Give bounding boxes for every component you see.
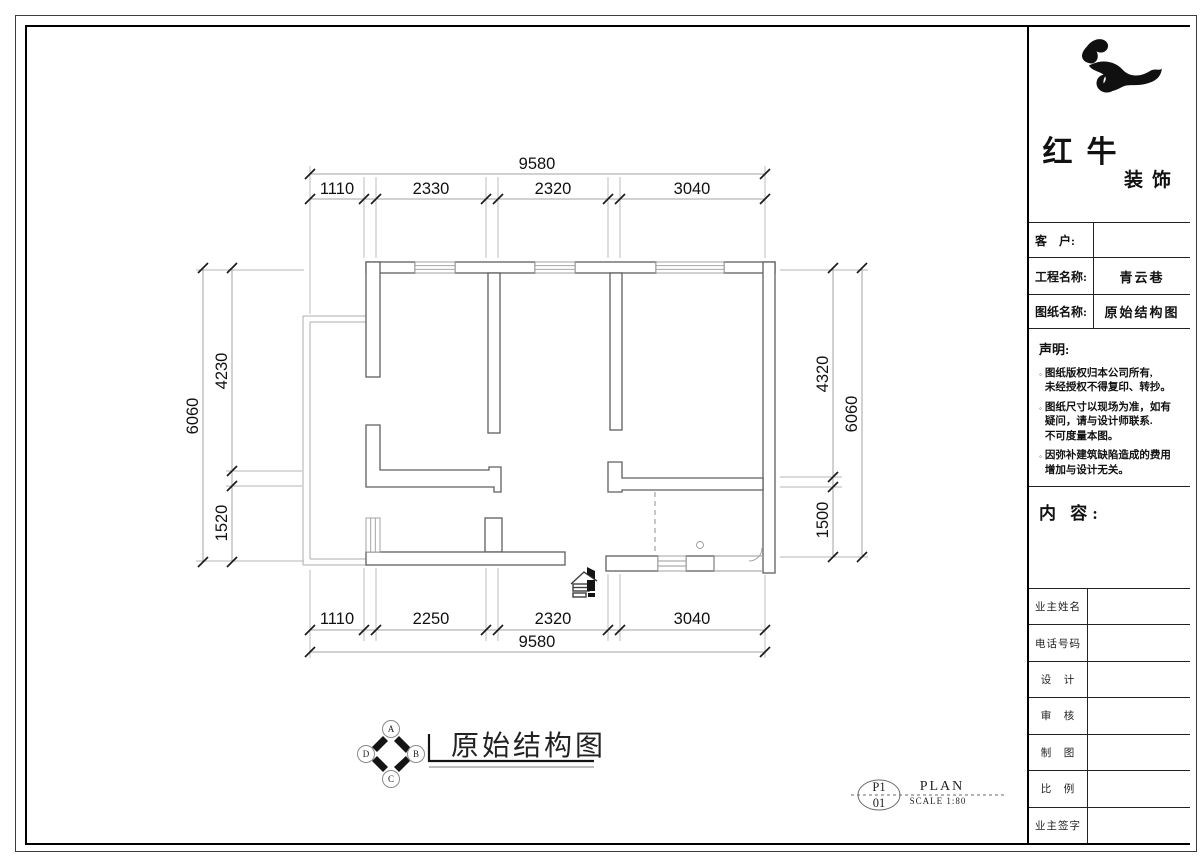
elevation-label-c: C <box>388 774 394 784</box>
dimension-right: 4320 1500 6060 <box>780 263 868 562</box>
signature-value-cell <box>1088 589 1190 624</box>
elevation-label-b: B <box>413 749 419 759</box>
field-value: 青云巷 <box>1094 258 1190 294</box>
dim-top-seg-2: 2330 <box>413 180 450 198</box>
bullet-icon: ◦ <box>1039 401 1042 444</box>
elevation-label-a: A <box>388 724 395 734</box>
dashed-partition <box>655 492 704 556</box>
field-row-sheet-name: 图纸名称: 原始结构图 <box>1029 294 1190 328</box>
plan-title-text: 原始结构图 <box>451 730 606 762</box>
brand-subname: 装饰 <box>1124 165 1180 192</box>
field-value <box>1094 223 1190 257</box>
dim-top-seg-3: 2320 <box>535 180 572 198</box>
signature-row-design: 设 计 <box>1029 661 1190 697</box>
statement-item: ◦ 图纸尺寸以现场为准，如有 疑问，请与设计师联系. 不可度量本图。 <box>1039 401 1184 444</box>
signature-value-cell <box>1088 698 1190 733</box>
dim-bottom-seg-4: 3040 <box>674 610 711 628</box>
walls <box>366 262 775 573</box>
ref-scale: SCALE 1:80 <box>910 796 967 806</box>
dim-top-seg-4: 3040 <box>674 180 711 198</box>
signature-row-owner-name: 业主姓名 <box>1029 588 1190 624</box>
field-label: 工程名称: <box>1029 258 1094 294</box>
statement-item: ◦ 图纸版权归本公司所有, 未经授权不得复印、转抄。 <box>1039 367 1184 396</box>
dim-left-seg-1: 4230 <box>213 353 231 390</box>
floor-drain-icon <box>697 542 704 549</box>
bull-logo-icon <box>1051 33 1169 129</box>
dim-top-seg-1: 1110 <box>320 180 354 198</box>
signature-row-owner-sign: 业主签字 <box>1029 807 1190 843</box>
ref-name: PLAN <box>920 779 965 794</box>
signature-value-cell <box>1088 808 1190 843</box>
balcony-outline <box>303 316 366 565</box>
sheet-ref: P1 01 PLAN SCALE 1:80 <box>851 779 1006 810</box>
dim-right-seg-2: 1500 <box>814 502 832 539</box>
dim-left-total: 6060 <box>184 398 202 435</box>
dim-bottom-total: 9580 <box>519 633 556 651</box>
field-row-project: 工程名称: 青云巷 <box>1029 257 1190 294</box>
signature-row-scale: 比 例 <box>1029 770 1190 806</box>
ref-sheet: P1 <box>872 780 885 794</box>
dimension-bottom: 1110 2250 2320 3040 9580 <box>305 568 770 658</box>
dim-bottom-seg-3: 2320 <box>535 610 572 628</box>
content-heading: 内 容: <box>1039 504 1103 523</box>
content-block: 内 容: <box>1029 486 1190 588</box>
dimension-left: 4230 1520 6060 <box>184 263 304 567</box>
field-label: 图纸名称: <box>1029 295 1094 328</box>
signature-value-cell <box>1088 735 1190 770</box>
dim-top-total: 9580 <box>519 155 556 173</box>
drawing-sheet: 9580 1110 2330 2320 3040 1110 2250 2320 … <box>0 0 1200 865</box>
statement-item: ◦ 因弥补建筑缺陷造成的费用 增加与设计无关。 <box>1039 449 1184 478</box>
field-row-client: 客 户: <box>1029 222 1190 257</box>
door-swing-arc <box>749 548 762 561</box>
windows <box>366 262 763 571</box>
statement-heading: 声明: <box>1039 339 1184 358</box>
signature-value-cell <box>1088 771 1190 806</box>
brand-logo-cell: 红牛 装饰 <box>1029 27 1190 222</box>
signature-value-cell <box>1088 662 1190 697</box>
ref-number: 01 <box>873 796 886 810</box>
signature-row-phone: 电话号码 <box>1029 624 1190 660</box>
elevation-label-d: D <box>363 749 370 759</box>
field-value: 原始结构图 <box>1094 295 1190 328</box>
elevation-symbol: A B C D <box>358 721 425 788</box>
dim-left-seg-2: 1520 <box>213 505 231 542</box>
bullet-icon: ◦ <box>1039 449 1042 478</box>
field-label: 客 户: <box>1029 223 1094 257</box>
signature-row-review: 审 核 <box>1029 697 1190 733</box>
drawing-title: 原始结构图 <box>429 730 606 767</box>
bullet-icon: ◦ <box>1039 367 1042 396</box>
signature-value-cell <box>1088 625 1190 660</box>
floor-plan-canvas: 9580 1110 2330 2320 3040 1110 2250 2320 … <box>0 0 1025 865</box>
entry-marker-icon <box>571 567 597 597</box>
dim-bottom-seg-1: 1110 <box>320 610 354 628</box>
signature-row-draft: 制 图 <box>1029 734 1190 770</box>
dim-right-total: 6060 <box>843 396 861 433</box>
dim-bottom-seg-2: 2250 <box>413 610 450 628</box>
statement-block: 声明: ◦ 图纸版权归本公司所有, 未经授权不得复印、转抄。 ◦ 图纸尺寸以现场… <box>1029 328 1190 486</box>
title-block: 红牛 装饰 客 户: 工程名称: 青云巷 图纸名称: 原始结构图 声明: ◦ 图… <box>1027 27 1190 843</box>
dim-right-seg-1: 4320 <box>814 356 832 393</box>
